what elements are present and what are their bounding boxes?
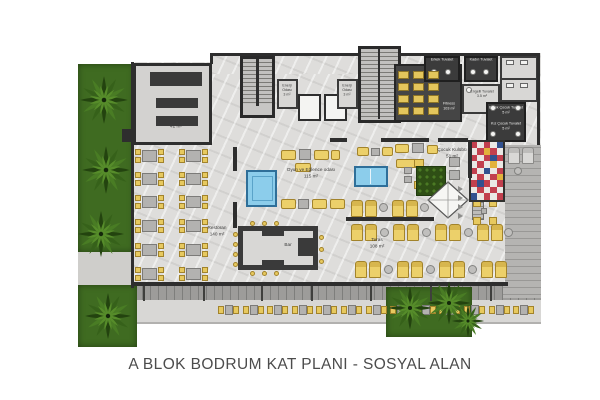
bar-stool	[262, 221, 267, 226]
wall-stub-3	[330, 138, 347, 142]
fitness-equipment	[413, 95, 424, 103]
lounger	[351, 224, 363, 241]
deck-chair	[331, 306, 337, 314]
dining-chair	[135, 227, 141, 233]
arrow-right-icon	[458, 204, 463, 210]
lounger	[369, 261, 381, 278]
deck-table	[250, 305, 258, 315]
coffee-table	[298, 199, 309, 209]
round-table	[422, 228, 431, 237]
play-mat-cell	[497, 193, 503, 199]
label-oyun-eglence: Oyun ve Eğlence odası115 m²	[287, 168, 335, 180]
deck-table-group	[267, 303, 288, 317]
sofa	[357, 147, 369, 156]
toilet-icon	[490, 131, 496, 137]
deck-chair	[356, 306, 362, 314]
dining-table	[142, 268, 157, 280]
lounger	[365, 200, 377, 217]
dining-chair	[179, 267, 185, 273]
dining-table-group	[179, 149, 208, 163]
fence-post	[311, 286, 313, 301]
fitness-equipment	[428, 83, 439, 91]
dining-table	[186, 150, 201, 162]
lounger	[406, 200, 418, 217]
round-table	[379, 203, 388, 212]
dining-chair	[158, 149, 164, 155]
dining-chair	[179, 219, 185, 225]
sink-icon	[520, 60, 528, 65]
deck-chair	[513, 306, 519, 314]
dining-chair	[202, 243, 208, 249]
lounger	[477, 224, 489, 241]
deck-chair	[243, 306, 249, 314]
lounger	[495, 261, 507, 278]
fence-post	[143, 286, 145, 301]
sofa	[314, 150, 329, 160]
dining-chair	[158, 195, 164, 201]
deck-table	[373, 305, 381, 315]
fitness-equipment	[398, 71, 409, 79]
dining-table-group	[135, 172, 164, 186]
label-cocuk-kulubu: Çocuk Kulübü51 m²	[437, 148, 466, 160]
dining-table-group	[135, 219, 164, 233]
dining-chair	[158, 219, 164, 225]
dining-table-group	[135, 243, 164, 257]
fitness-equipment	[398, 83, 409, 91]
lounger	[351, 200, 363, 217]
wall-top-left	[212, 53, 358, 56]
fitness-equipment	[398, 107, 409, 115]
fitness-equipment	[413, 107, 424, 115]
palm-tree-icon	[71, 204, 131, 264]
deck-chair	[258, 306, 264, 314]
lounger	[508, 147, 520, 164]
deck-table	[299, 305, 307, 315]
sofa	[427, 145, 438, 154]
round-table	[426, 265, 435, 274]
dining-chair	[202, 180, 208, 186]
deck-table-group	[292, 303, 313, 317]
toilet-icon	[445, 69, 451, 75]
deck-chair	[282, 306, 288, 314]
bar-stool	[250, 221, 255, 226]
wall-stub-1	[233, 147, 237, 171]
deck-table	[274, 305, 282, 315]
side-table	[404, 176, 412, 183]
dining-chair	[179, 243, 185, 249]
plan-caption: A BLOK BODRUM KAT PLANI - SOSYAL ALAN	[0, 356, 600, 374]
wall-stub-4	[381, 138, 429, 142]
dining-table-group	[179, 172, 208, 186]
deck-chair	[504, 306, 510, 314]
deck-table	[520, 305, 528, 315]
round-table	[384, 265, 393, 274]
dining-chair	[202, 203, 208, 209]
deck-table	[348, 305, 356, 315]
deck-table-group	[513, 303, 534, 317]
label-kiz-cocuk-tuvalet: Kız Çocuk Tuvalet5 m²	[491, 122, 521, 131]
palm-tree-icon	[78, 286, 138, 346]
dining-table	[186, 196, 201, 208]
deck-chair	[366, 306, 372, 314]
dining-chair	[135, 203, 141, 209]
dining-chair	[202, 251, 208, 257]
dining-chair	[135, 251, 141, 257]
wall-right	[537, 53, 540, 145]
dining-chair	[135, 275, 141, 281]
dining-table-group	[179, 219, 208, 233]
washroom-divider	[502, 78, 536, 80]
dining-chair	[158, 180, 164, 186]
sink-icon	[506, 83, 514, 88]
label-teras: Teras108 m²	[370, 238, 385, 250]
deck-table	[496, 305, 504, 315]
lounger	[491, 224, 503, 241]
round-table	[504, 228, 513, 237]
dining-chair	[179, 251, 185, 257]
palm-tree-icon	[75, 139, 137, 201]
arrow-right-icon	[458, 213, 463, 219]
coffee-table	[299, 149, 311, 160]
round-table	[468, 265, 477, 274]
deck-chair	[528, 306, 534, 314]
arrow-right-icon	[458, 186, 463, 192]
deck-chair	[307, 306, 313, 314]
sofa	[281, 199, 296, 209]
deck-table	[323, 305, 331, 315]
palm-tree-icon	[447, 300, 489, 342]
dining-table	[142, 150, 157, 162]
label-kadin-tuvalet: Kadın Tuvalet	[470, 58, 493, 63]
kitchen-counter-2	[156, 98, 198, 108]
lounger	[355, 261, 367, 278]
label-erkek-tuvalet: Erkek Tuvalet	[431, 58, 454, 63]
bar-stool	[233, 252, 238, 257]
label-mutfak: Mutfak42 m²	[169, 118, 183, 130]
fence-post	[370, 286, 372, 301]
lounger	[397, 261, 409, 278]
deck-chair	[316, 306, 322, 314]
dining-chair	[158, 227, 164, 233]
round-table	[420, 203, 429, 212]
label-fitness: Fitness103 m²	[443, 102, 455, 111]
kitchen-counter-1	[150, 72, 202, 86]
sofa	[395, 144, 409, 153]
label-erkek-cocuk-tuvalet: Erkek Çocuk Tuvalet5 m²	[489, 106, 523, 115]
dining-chair	[158, 203, 164, 209]
deck-chair	[233, 306, 239, 314]
dining-chair	[179, 275, 185, 281]
round-table	[464, 228, 473, 237]
label-bar: Bar	[284, 243, 291, 249]
dining-table	[142, 196, 157, 208]
deck-table	[225, 305, 233, 315]
fence-post	[203, 286, 205, 301]
dining-chair	[179, 172, 185, 178]
dining-chair	[135, 267, 141, 273]
fitness-equipment	[398, 95, 409, 103]
bar-stool	[319, 247, 324, 252]
bar-shelf-bottom	[262, 260, 284, 270]
label-engelli-tuvalet: Engelli Tuvalet3.5 m²	[470, 90, 493, 99]
staircase-left-rail	[256, 59, 259, 106]
dining-chair	[202, 172, 208, 178]
dining-table-group	[135, 149, 164, 163]
bar-stool	[274, 271, 279, 276]
palm-tree-icon	[73, 69, 135, 131]
sofa	[312, 199, 327, 209]
dining-chair	[202, 219, 208, 225]
toilet-icon	[515, 131, 521, 137]
sink-icon	[506, 60, 514, 65]
dining-chair	[135, 219, 141, 225]
lounger	[522, 147, 534, 164]
bar-stool	[233, 242, 238, 247]
dining-chair	[158, 243, 164, 249]
lounger	[481, 261, 493, 278]
label-restoran: Restoran140 m²	[207, 226, 226, 238]
dining-chair	[158, 157, 164, 163]
dining-table	[186, 268, 201, 280]
lounger	[407, 224, 419, 241]
dining-table	[142, 244, 157, 256]
dining-chair	[202, 149, 208, 155]
toilet-icon	[483, 69, 489, 75]
toilet-icon	[470, 69, 476, 75]
terrace-low-wall	[346, 217, 434, 221]
dining-chair	[179, 227, 185, 233]
dining-chair	[179, 195, 185, 201]
dining-chair	[202, 195, 208, 201]
bar-stool	[233, 262, 238, 267]
fitness-equipment	[428, 95, 439, 103]
deck-chair	[341, 306, 347, 314]
wall-stub-2	[233, 202, 237, 228]
bar-stool	[250, 271, 255, 276]
fitness-equipment	[413, 71, 424, 79]
dining-table	[186, 244, 201, 256]
dining-table-group	[179, 243, 208, 257]
bar-shelf-top	[262, 226, 284, 236]
dining-table-group	[179, 267, 208, 281]
billiard-table	[246, 170, 277, 207]
play-mat	[469, 140, 505, 202]
deck-chair	[267, 306, 273, 314]
kids-table	[481, 208, 487, 214]
sink-icon	[520, 83, 528, 88]
dining-chair	[158, 251, 164, 257]
deck-table-group	[218, 303, 239, 317]
label-enerji-1: Enerji Odası3 m²	[279, 84, 295, 98]
sofa	[281, 150, 296, 160]
lounger	[435, 224, 447, 241]
bar-stool	[274, 221, 279, 226]
dining-chair	[135, 243, 141, 249]
round-table	[514, 167, 522, 175]
sofa	[330, 199, 345, 209]
kids-table	[449, 170, 460, 180]
dining-chair	[202, 157, 208, 163]
wall-top-right	[399, 53, 540, 56]
dining-chair	[179, 180, 185, 186]
dining-table-group	[135, 267, 164, 281]
staircase-right-rail	[378, 49, 380, 119]
label-enerji-2: Enerji Odası3 m²	[339, 84, 355, 98]
round-table	[380, 228, 389, 237]
dining-table	[142, 220, 157, 232]
wall-stub-6	[468, 140, 472, 178]
dining-table	[142, 173, 157, 185]
deck-chair	[218, 306, 224, 314]
fitness-equipment	[428, 71, 439, 79]
fitness-equipment	[428, 107, 439, 115]
dining-chair	[202, 267, 208, 273]
dining-chair	[179, 149, 185, 155]
wall-left-jog	[210, 53, 213, 64]
wall-stub-5	[438, 138, 468, 142]
dining-chair	[179, 203, 185, 209]
side-table	[404, 167, 412, 174]
dining-chair	[202, 275, 208, 281]
bar-stool	[262, 271, 267, 276]
coffee-table	[371, 148, 380, 156]
deck-table-group	[341, 303, 362, 317]
lounger	[393, 224, 405, 241]
elevator-1	[298, 94, 321, 121]
lounger	[392, 200, 404, 217]
dining-table	[186, 220, 201, 232]
fitness-equipment	[413, 83, 424, 91]
dining-chair	[158, 267, 164, 273]
dining-chair	[179, 157, 185, 163]
deck-table-group	[316, 303, 337, 317]
deck-chair	[292, 306, 298, 314]
fence-post	[261, 286, 263, 301]
fence-post	[490, 286, 492, 301]
coffee-table	[412, 143, 424, 153]
deck-table-group	[243, 303, 264, 317]
sofa	[382, 147, 393, 156]
bar-back-counter	[298, 238, 313, 256]
dining-chair	[158, 172, 164, 178]
dining-table-group	[179, 195, 208, 209]
floor-plan: Mutfak42 m² Enerji Odası3 m² Enerji Odas…	[0, 0, 600, 400]
deck-table-group	[489, 303, 510, 317]
bar-stool	[319, 235, 324, 240]
pool-table	[354, 166, 388, 187]
dining-chair	[158, 275, 164, 281]
dining-table-group	[135, 195, 164, 209]
deck-chair	[489, 306, 495, 314]
dining-table	[186, 173, 201, 185]
sofa	[331, 150, 340, 160]
bar-stool	[319, 259, 324, 264]
arrow-right-icon	[458, 195, 463, 201]
bar-stool	[233, 232, 238, 237]
lounger	[449, 224, 461, 241]
